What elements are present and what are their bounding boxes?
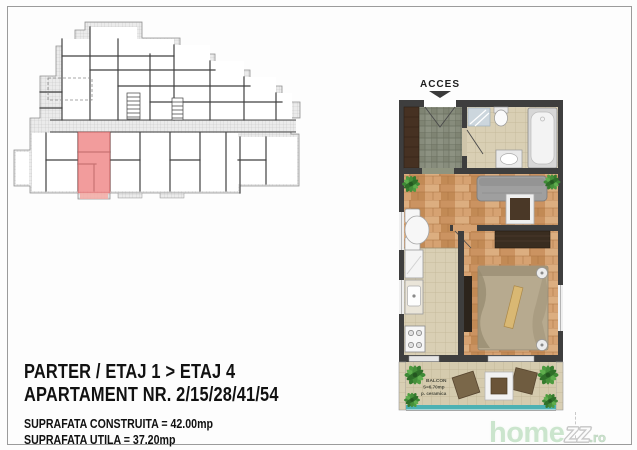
bathroom-mirror	[468, 108, 490, 126]
bathtub	[528, 108, 557, 168]
area-info-block: SUPRAFATA CONSTRUITA = 42.00mp SUPRAFATA…	[24, 417, 213, 448]
watermark-ro-text: .ro	[589, 430, 606, 445]
svg-text:BALCON: BALCON	[426, 378, 447, 384]
svg-text:p. ceramica: p. ceramica	[421, 391, 447, 396]
tv-unit	[464, 276, 472, 332]
balcony: BALCON S=6.70mp p. ceramica	[399, 362, 563, 411]
homezz-watermark: homezz.ro	[489, 419, 606, 450]
toilet	[494, 107, 508, 126]
listing-title-block: PARTER / ETAJ 1 > ETAJ 4 APARTAMENT NR. …	[24, 361, 279, 407]
stove	[405, 326, 425, 352]
bathroom-sink	[496, 150, 522, 168]
bedroom-wardrobe	[495, 231, 550, 248]
balcony-railing	[406, 405, 556, 410]
balcony-stubs	[118, 193, 184, 198]
watermark-zz-text: zz	[564, 417, 589, 449]
bathroom-door	[462, 128, 467, 156]
acces-arrow-icon	[429, 91, 451, 98]
kitchen-sink	[405, 280, 423, 314]
bed	[478, 266, 548, 350]
coffee-table	[506, 194, 534, 224]
apartment-number-label: APARTAMENT NR. 2/15/28/41/54	[24, 384, 279, 407]
svg-text:S=6.70mp: S=6.70mp	[423, 385, 445, 390]
entrance-door	[424, 100, 456, 107]
apartment-floor-plan: ACCES	[395, 72, 570, 417]
bedroom-door	[453, 225, 477, 231]
watermark-home-text: home	[489, 417, 564, 449]
building-overview-plan	[10, 12, 310, 247]
building-corridor	[50, 120, 296, 132]
floor-plan-page: ACCES	[0, 0, 637, 450]
balcony-table	[485, 372, 513, 400]
floor-range-label: PARTER / ETAJ 1 > ETAJ 4	[24, 361, 279, 384]
hall-opening	[422, 168, 454, 174]
fridge	[405, 250, 423, 278]
highlighted-unit	[78, 132, 110, 199]
acces-label: ACCES	[420, 79, 460, 90]
built-area-label: SUPRAFATA CONSTRUITA = 42.00mp	[24, 417, 213, 433]
usable-area-label: SUPRAFATA UTILA = 37.20mp	[24, 433, 213, 449]
entry-wardrobe	[404, 107, 419, 168]
